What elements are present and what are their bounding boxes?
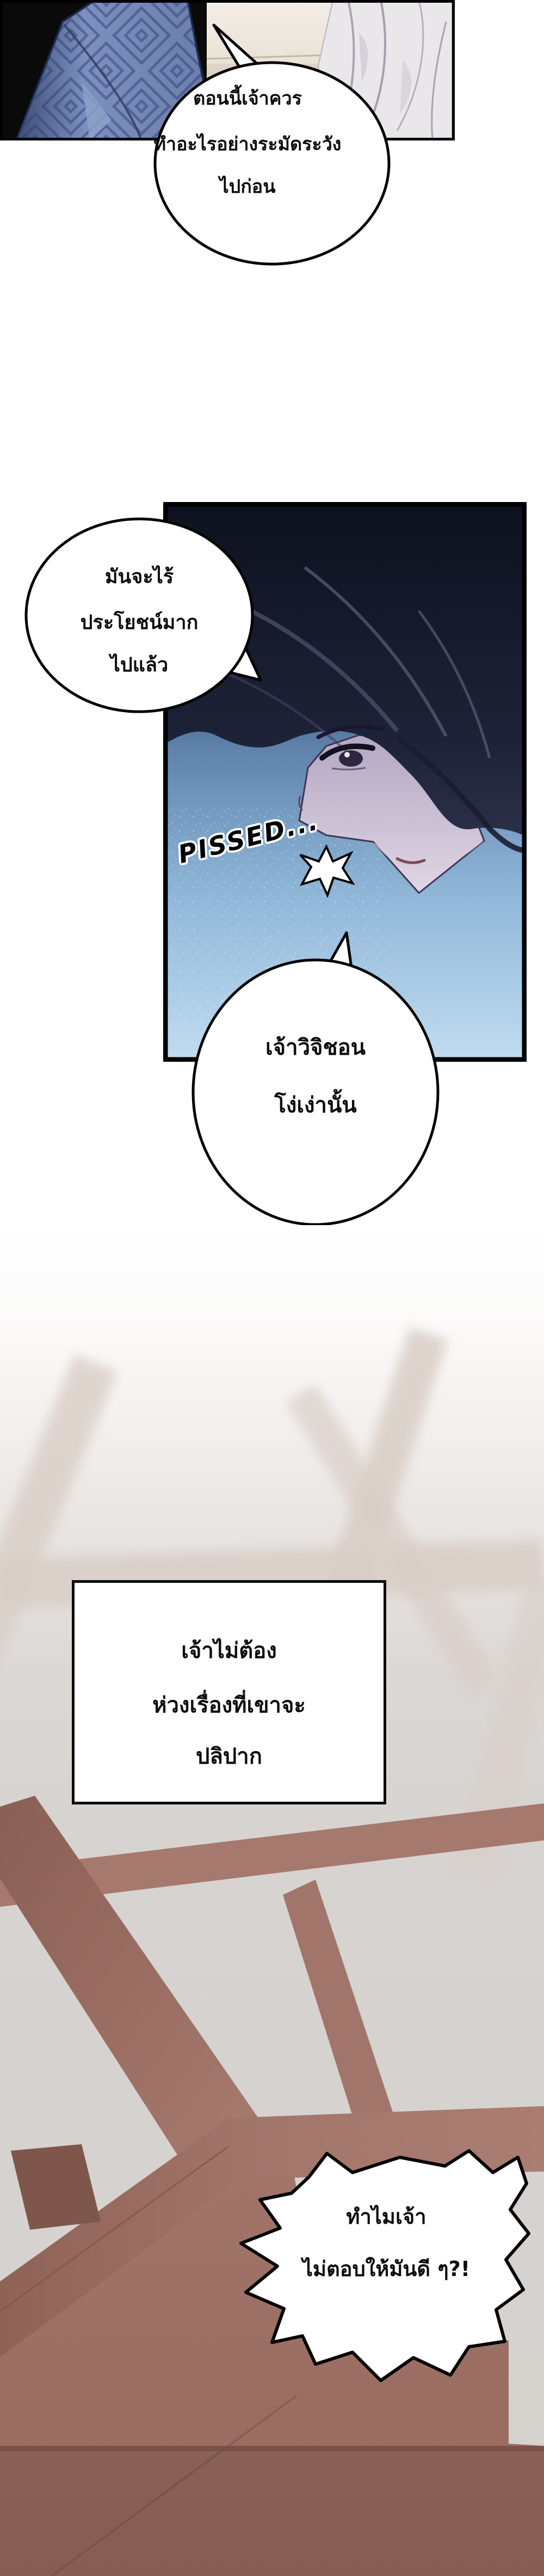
bubble2-line1: มันจะไร้ (22, 565, 257, 589)
speech-bubble-2: มันจะไร้ ประโยชน์มาก ไปแล้ว (22, 515, 269, 719)
shout-bubble: ทำไมเจ้า ไม่ตอบให้มันดี ๆ?! (234, 2145, 539, 2526)
shout-line1: ทำไมเจ้า (234, 2204, 539, 2230)
speech-bubble-3: เจ้าวิจิชอน โง่เง่านั้น (188, 923, 443, 1229)
caption-line2: ห่วงเรื่องที่เขาจะ (75, 1687, 384, 1722)
eye-glint (344, 752, 350, 757)
eye-iris (339, 750, 363, 767)
bubble1-line1: ตอนนี้เจ้าควร (98, 87, 397, 111)
bubble1-line3: ไปก่อน (98, 175, 397, 199)
shout-bubble-shape (234, 2145, 539, 2526)
bubble2-line3: ไปแล้ว (22, 653, 257, 677)
speech-bubble-1: ตอนนี้เจ้าควร ทำอะไรอย่างระมัดระวัง ไปก่… (98, 21, 397, 274)
window-beam-branch (283, 1880, 394, 2128)
caption-box: เจ้าไม่ต้อง ห่วงเรื่องที่เขาจะ ปลิปาก (72, 1580, 386, 1804)
bubble3-line1: เจ้าวิจิชอน (188, 1034, 443, 1061)
speech-bubble-3-shape (188, 923, 443, 1229)
caption-line3: ปลิปาก (75, 1739, 384, 1773)
panel-window-scene: เจ้าไม่ต้อง ห่วงเรื่องที่เขาจะ ปลิปาก ทำ… (0, 1225, 544, 2576)
window-post-stub (11, 2144, 101, 2230)
bubble1-line2: ทำอะไรอย่างระมัดระวัง (98, 133, 397, 156)
shout-line2: ไม่ตอบให้มันดี ๆ?! (234, 2256, 539, 2283)
bubble3-line2: โง่เง่านั้น (188, 1092, 443, 1119)
caption-line1: เจ้าไม่ต้อง (75, 1633, 384, 1668)
comic-page: ตอนนี้เจ้าควร ทำอะไรอย่างระมัดระวัง ไปก่… (0, 0, 544, 2576)
bubble2-line2: ประโยชน์มาก (22, 610, 257, 635)
